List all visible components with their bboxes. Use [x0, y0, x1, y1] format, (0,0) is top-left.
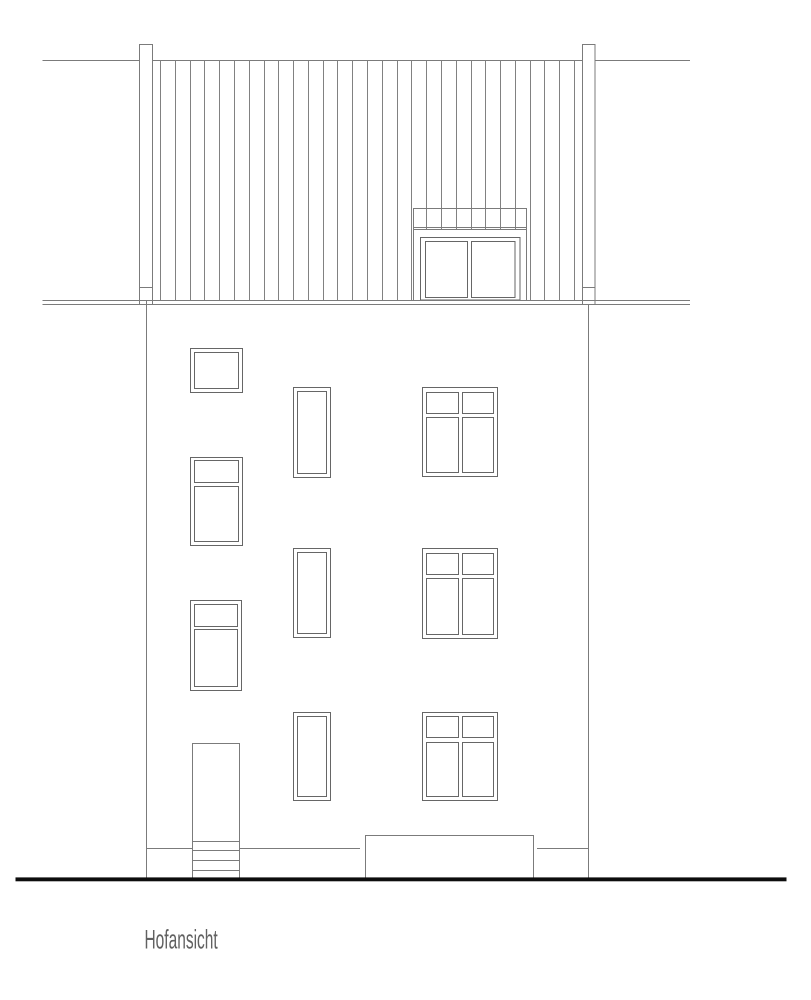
svg-text:Hofansicht: Hofansicht — [145, 924, 218, 955]
